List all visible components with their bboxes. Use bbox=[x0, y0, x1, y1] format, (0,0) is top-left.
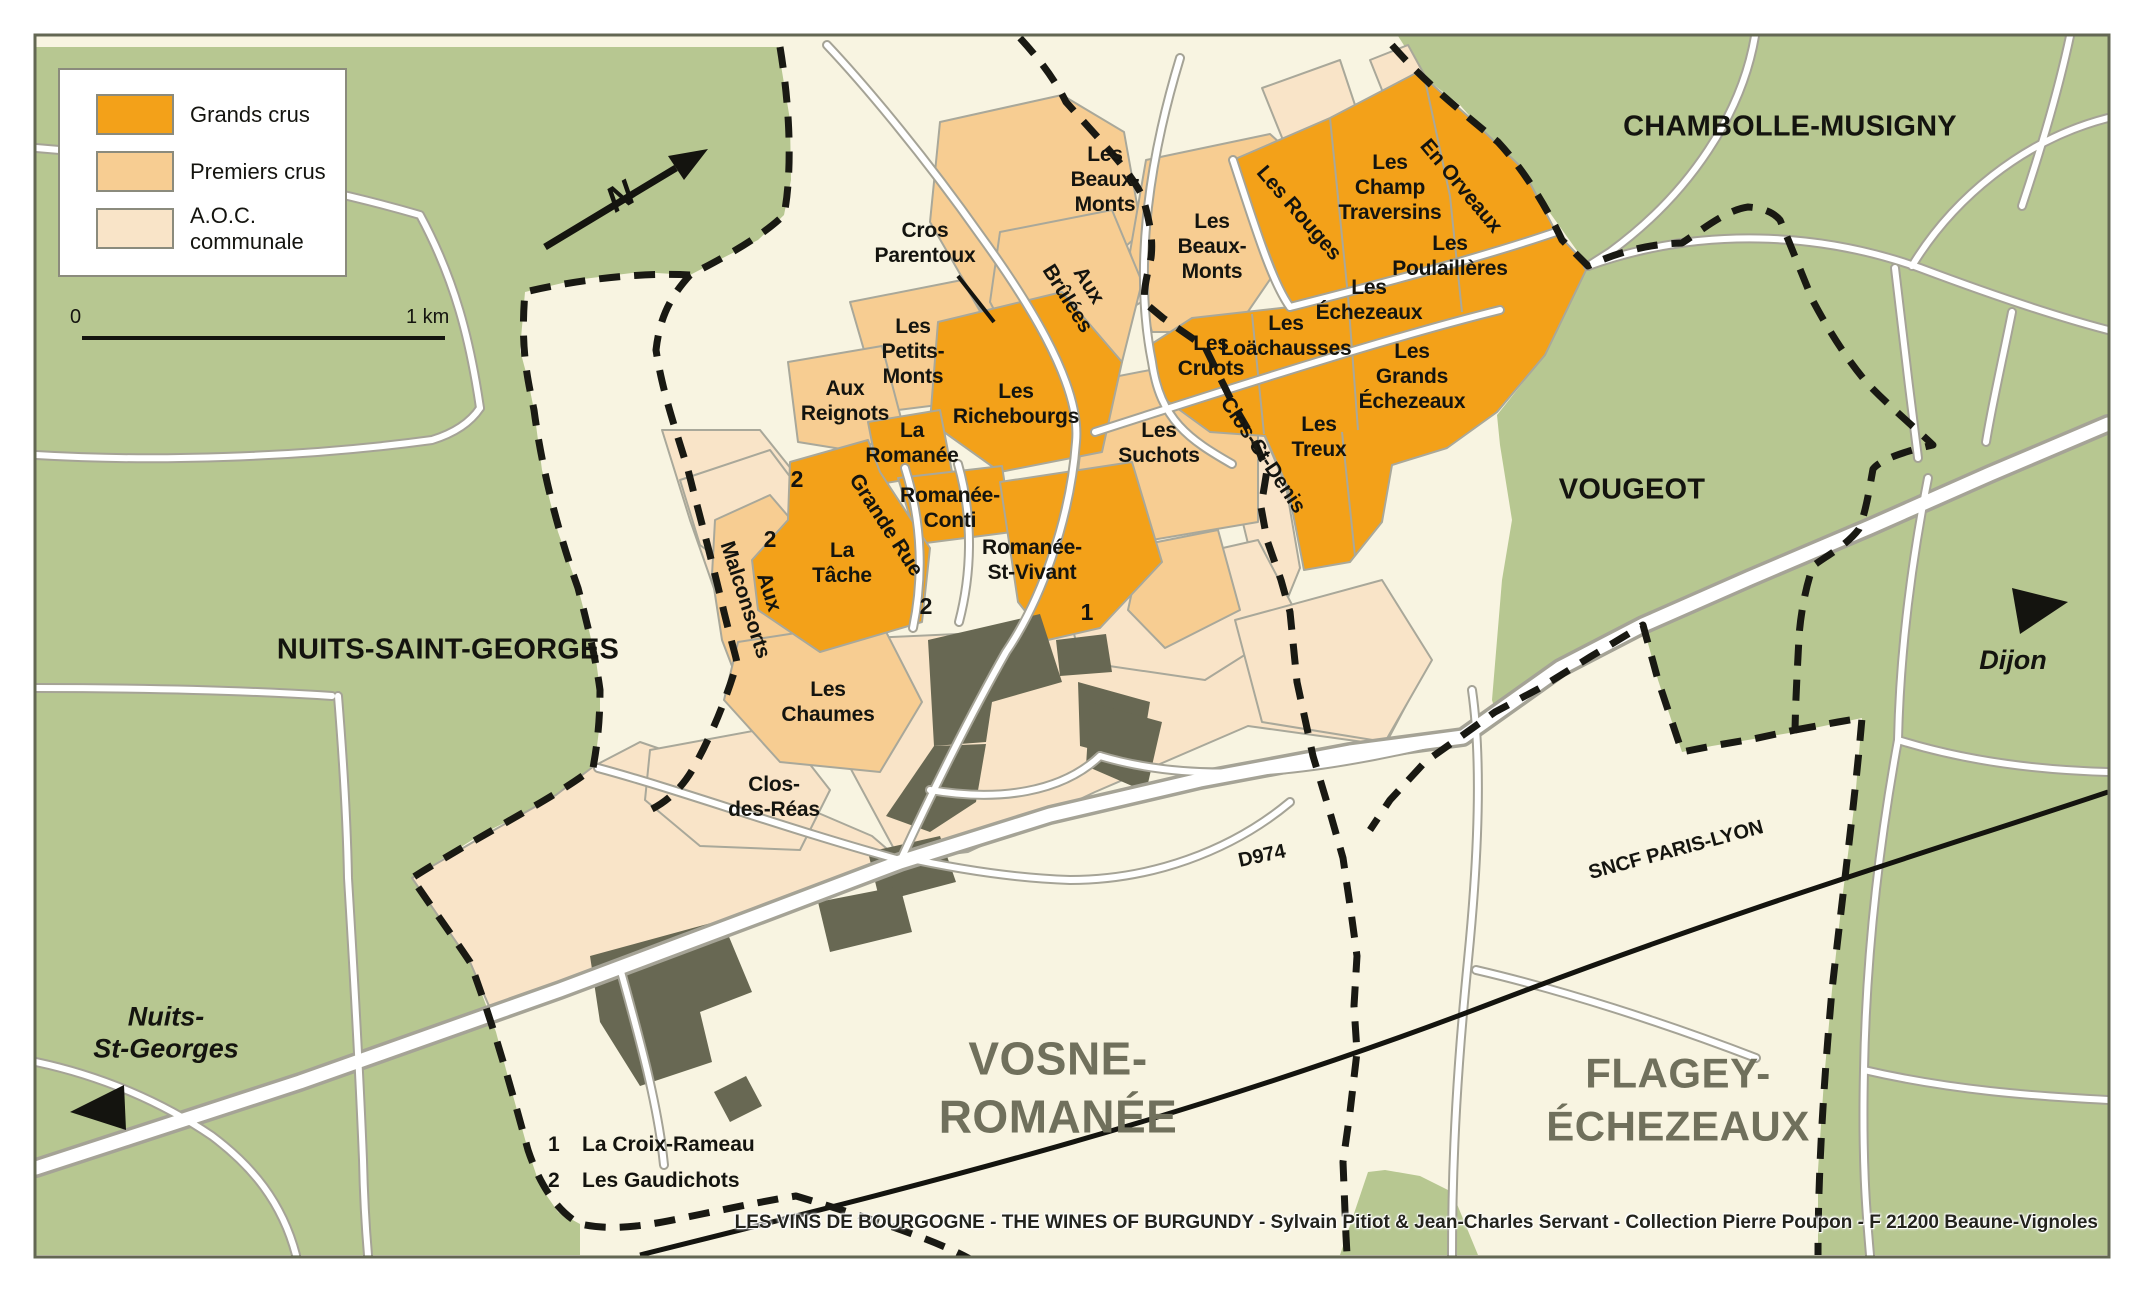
scale-line bbox=[82, 336, 445, 340]
scale-end: 1 km bbox=[406, 306, 449, 329]
legend: Grands crus Premiers crus A.O.C. communa… bbox=[58, 68, 347, 277]
legend-row-grands-crus: Grands crus bbox=[96, 94, 345, 135]
grands-crus-swatch bbox=[96, 94, 174, 135]
legend-label: A.O.C. communale bbox=[190, 203, 345, 255]
footnotes: 1 La Croix-Rameau 2 Les Gaudichots bbox=[548, 1133, 755, 1205]
legend-label: Premiers crus bbox=[190, 159, 326, 185]
footnote-la-croix-rameau: 1 La Croix-Rameau bbox=[548, 1133, 755, 1157]
legend-label: Grands crus bbox=[190, 102, 310, 128]
premiers-crus-swatch bbox=[96, 151, 174, 192]
map-page: Grands crus Premiers crus A.O.C. communa… bbox=[0, 0, 2144, 1291]
footnote-num: 2 bbox=[548, 1169, 582, 1193]
attribution: LES VINS DE BOURGOGNE - THE WINES OF BUR… bbox=[735, 1212, 2098, 1234]
legend-row-aoc-communale: A.O.C. communale bbox=[96, 208, 345, 249]
legend-row-premiers-crus: Premiers crus bbox=[96, 151, 345, 192]
aoc-communale-swatch bbox=[96, 208, 174, 249]
footnote-num: 1 bbox=[548, 1133, 582, 1157]
footnote-les-gaudichots: 2 Les Gaudichots bbox=[548, 1169, 755, 1193]
footnote-label: La Croix-Rameau bbox=[582, 1133, 755, 1157]
footnote-label: Les Gaudichots bbox=[582, 1169, 740, 1193]
scale-start: 0 bbox=[70, 306, 81, 329]
